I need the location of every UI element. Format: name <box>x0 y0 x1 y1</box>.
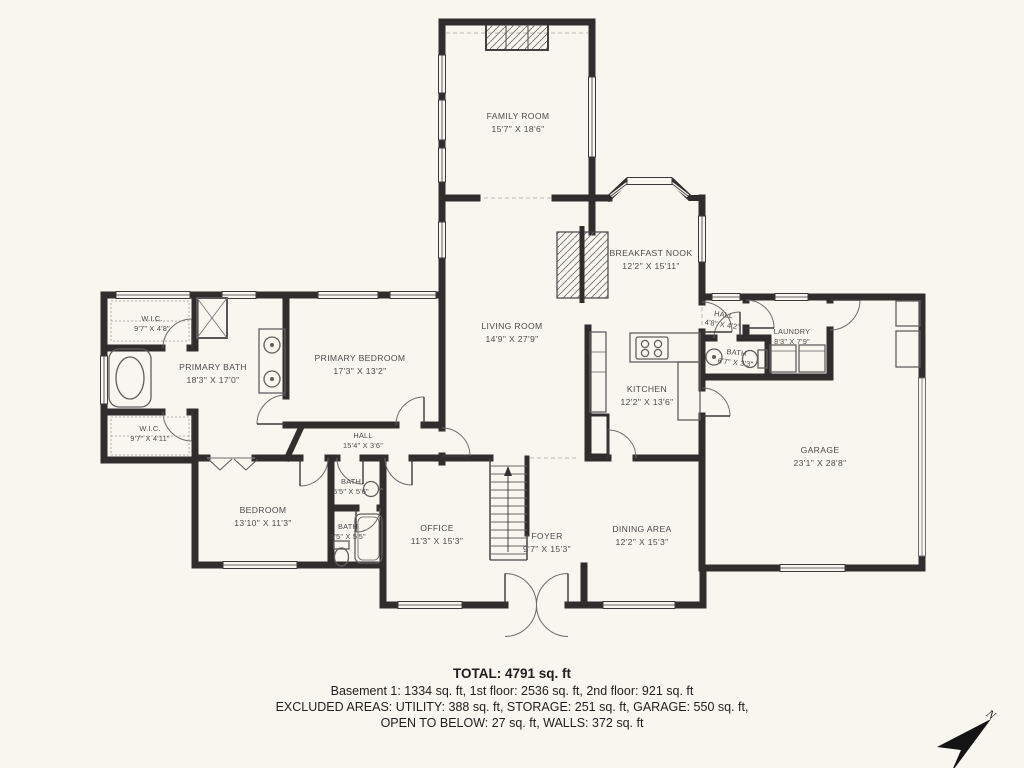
room-label-bedroom: BEDROOM13'10" X 11'3" <box>234 504 292 530</box>
floor-plan-page: N FAMILY ROOM15'7" X 18'6" BREAKFAST NOO… <box>0 0 1024 768</box>
room-label-foyer: FOYER9'7" X 15'3" <box>523 530 571 556</box>
room-label-primary-bedroom: PRIMARY BEDROOM17'3" X 13'2" <box>315 352 406 378</box>
excluded-areas-line: EXCLUDED AREAS: UTILITY: 388 sq. ft, STO… <box>0 700 1024 714</box>
garage-door <box>919 378 926 556</box>
room-label-wic-upper: W.I.C.9'7" X 4'8" <box>134 314 170 334</box>
room-label-bath-upper: BATH5'5" X 5'6" <box>333 477 369 497</box>
stairs-foyer <box>490 458 527 560</box>
room-label-bath-lower: BATH5'5" X 5'5" <box>330 522 366 542</box>
room-label-living-room: LIVING ROOM14'9" X 27'9" <box>481 320 542 346</box>
room-label-garage: GARAGE23'1" X 28'8" <box>793 444 846 470</box>
total-area-line: TOTAL: 4791 sq. ft <box>0 666 1024 681</box>
room-label-breakfast-nook: BREAKFAST NOOK12'2" X 15'11" <box>609 247 692 273</box>
stove <box>636 337 668 359</box>
room-label-dining-area: DINING AREA12'2" X 15'3" <box>612 523 671 549</box>
fireplace <box>486 24 548 50</box>
double-vanity <box>259 329 285 393</box>
area-summary: TOTAL: 4791 sq. ft Basement 1: 1334 sq. … <box>0 666 1024 730</box>
room-label-family-room: FAMILY ROOM15'7" X 18'6" <box>487 110 550 136</box>
room-label-bath-hall: BATH6'7" X 3'3" <box>717 346 755 370</box>
washer <box>770 345 796 372</box>
dryer <box>799 345 825 372</box>
room-label-primary-bath: PRIMARY BATH18'3" X 17'0" <box>179 361 247 387</box>
floors-area-line: Basement 1: 1334 sq. ft, 1st floor: 2536… <box>0 684 1024 698</box>
room-label-office: OFFICE11'3" X 15'3" <box>411 522 463 548</box>
door-swings <box>163 300 860 637</box>
open-below-line: OPEN TO BELOW: 27 sq. ft, WALLS: 372 sq.… <box>0 716 1024 730</box>
closet-bifold-doors <box>207 458 258 470</box>
garage-cabinet <box>896 331 920 367</box>
room-label-wic-lower: W.I.C.9'7" X 4'11" <box>130 424 170 444</box>
room-label-kitchen: KITCHEN12'2" X 13'6" <box>620 383 673 409</box>
garage-cabinet <box>896 301 920 326</box>
kitchen-counter <box>678 362 700 420</box>
stairs-living <box>557 226 608 303</box>
room-label-hall-main: HALL15'4" X 3'6" <box>343 431 383 451</box>
bathtub <box>109 349 151 407</box>
room-label-laundry: LAUNDRY8'3" X 7'9" <box>774 327 811 347</box>
